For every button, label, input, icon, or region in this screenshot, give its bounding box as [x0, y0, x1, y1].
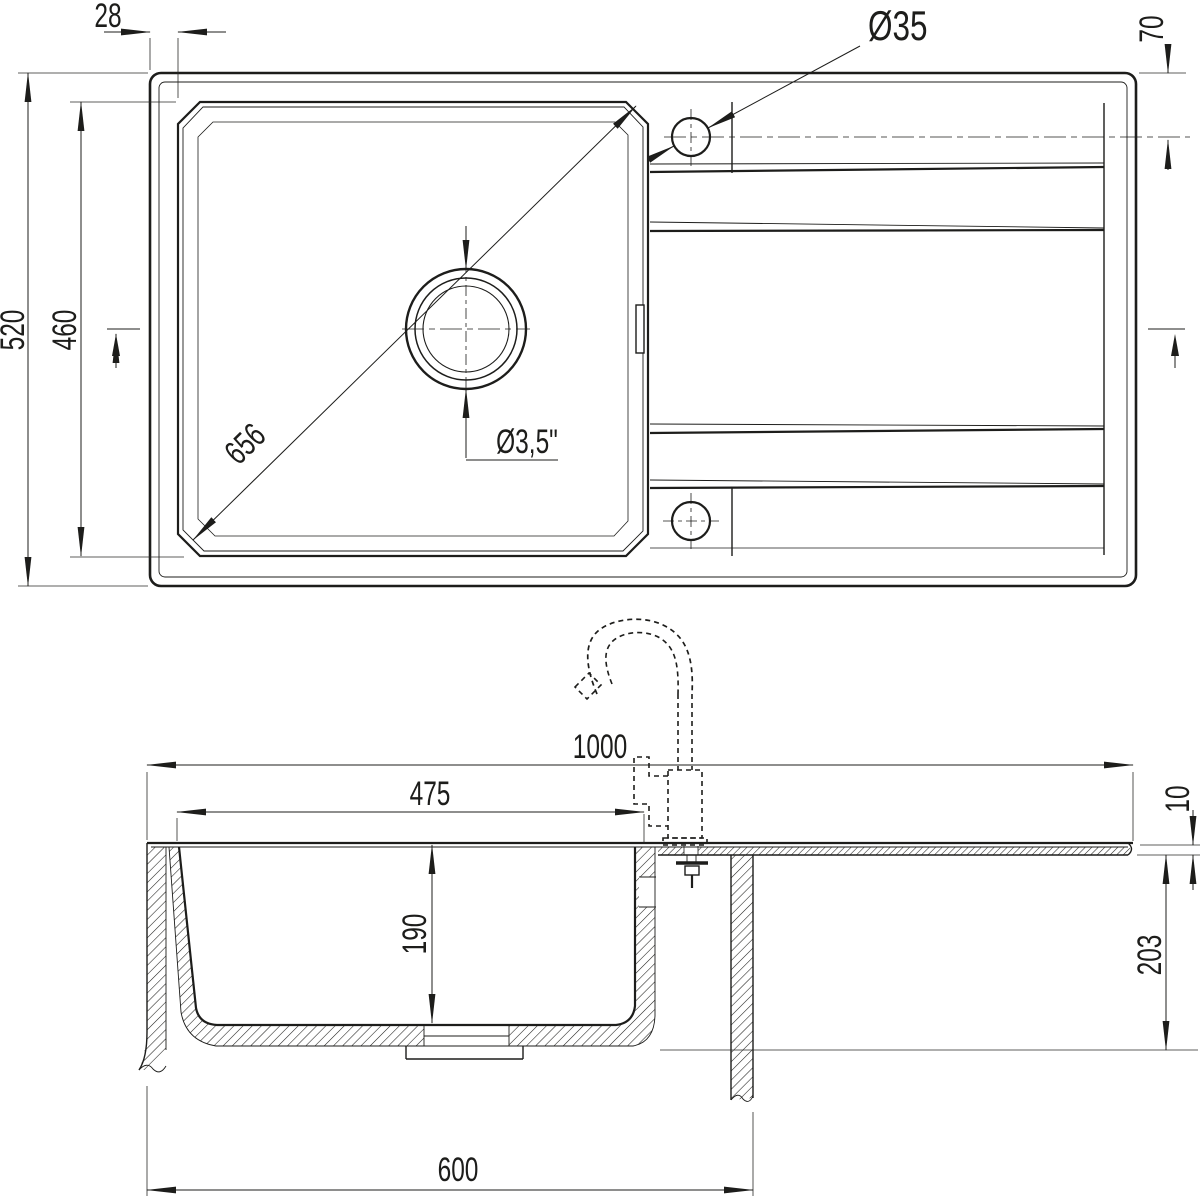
dim-board-thickness: 10: [1137, 785, 1200, 890]
tap-hole-bottom: [663, 493, 719, 549]
dim-drain-dia-label: Ø3,5": [496, 423, 558, 461]
top-view: 656 28 Ø35 70 520: [0, 0, 1190, 586]
dim-rim-offset: 28: [94, 0, 226, 98]
dim-bowl-depth: 190: [396, 845, 434, 1023]
dim-tap-offset: 70: [1133, 15, 1186, 170]
faucet-fixing-nut: [676, 855, 708, 888]
drain-hole: [402, 262, 530, 396]
overflow-slot-section: [639, 877, 656, 907]
faucet-body: [668, 770, 702, 838]
drawing-page: 656 28 Ø35 70 520: [0, 0, 1200, 1200]
dim-board-thickness-label: 10: [1159, 785, 1197, 812]
dim-cabinet-width-label: 600: [438, 1151, 479, 1189]
dim-overall-length-label: 1000: [573, 728, 627, 766]
overflow-slot-plan: [636, 305, 644, 353]
section-cabinet-side-fill: [731, 855, 753, 1100]
faucet-handle: [634, 757, 668, 826]
dim-overall-width-label: 520: [0, 310, 32, 351]
dim-drain-dia: Ø3,5": [466, 226, 558, 461]
section-view: 1000 475 190 10 203: [139, 619, 1200, 1196]
datum-mark-right: [1148, 329, 1185, 368]
dim-bowl-to-tap-axis-label: 475: [410, 775, 451, 813]
dim-bowl-to-tap-axis: 475: [177, 775, 644, 843]
faucet-spout-tip: [575, 673, 601, 699]
dim-tap-hole-dia-label: Ø35: [868, 2, 928, 50]
dim-bowl-width-plan-label: 460: [46, 310, 84, 351]
tap-hole-top: [664, 109, 1190, 167]
dim-bowl-diagonal: 656: [193, 106, 636, 540]
dim-overall-length: 1000: [147, 728, 1133, 841]
dim-tap-offset-label: 70: [1133, 15, 1171, 42]
section-left-wall-fill: [139, 847, 166, 1070]
drainboard-plan: [650, 102, 1104, 556]
technical-drawing-canvas: 656 28 Ø35 70 520: [0, 0, 1200, 1200]
dim-tap-hole-dia: Ø35: [648, 2, 928, 160]
dim-under-depth-label: 203: [1131, 935, 1169, 976]
drain-recess-cutout: [424, 1025, 509, 1046]
section-drainboard-fill: [658, 847, 1131, 855]
dim-bowl-diagonal-label: 656: [218, 416, 274, 472]
dim-bowl-depth-label: 190: [396, 914, 434, 955]
dim-cabinet-width: 600: [147, 1086, 753, 1196]
datum-mark-left: [107, 329, 140, 368]
dim-rim-offset-label: 28: [94, 0, 121, 35]
drain-flange-cutout: [406, 1046, 523, 1059]
